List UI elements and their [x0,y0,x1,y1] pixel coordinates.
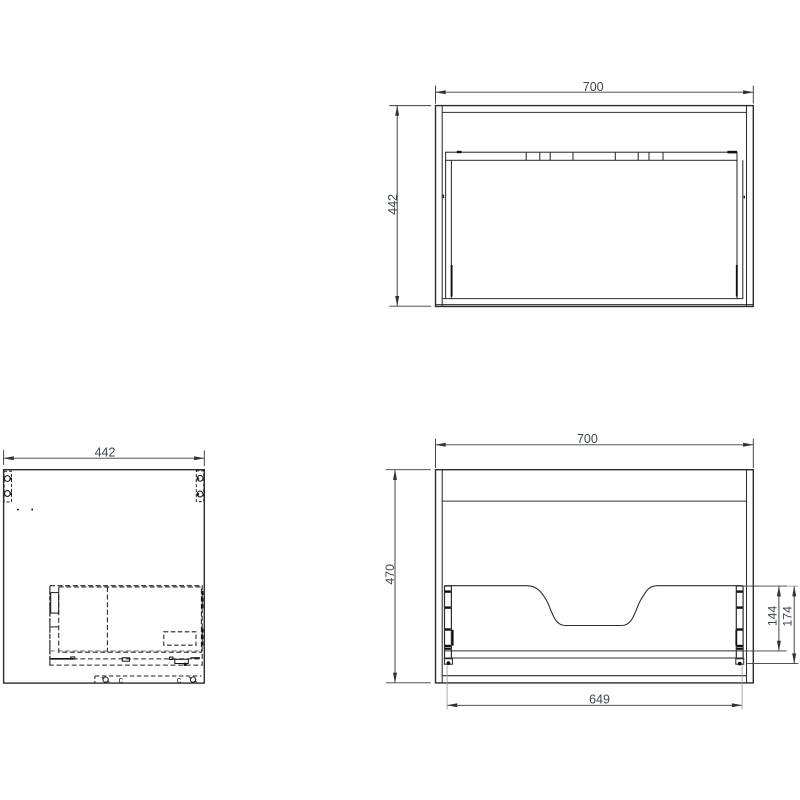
svg-text:700: 700 [577,432,598,446]
svg-text:c: c [118,675,123,685]
svg-text:144: 144 [766,605,780,626]
svg-text:442: 442 [95,446,116,460]
svg-text:649: 649 [589,692,610,706]
svg-text:174: 174 [780,606,794,627]
svg-text:c: c [177,675,182,685]
svg-text:442: 442 [386,194,400,215]
svg-text:700: 700 [583,80,604,94]
svg-text:470: 470 [383,564,397,585]
